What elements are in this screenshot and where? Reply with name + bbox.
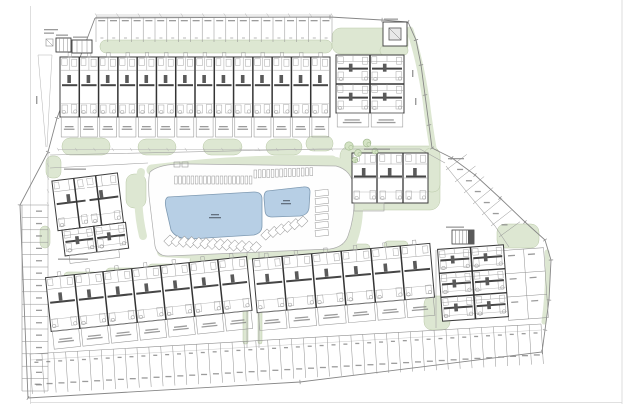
architectural-site-plan	[0, 0, 631, 404]
apartment-block-southeast	[438, 245, 509, 321]
tree-icon	[355, 150, 362, 157]
tree-icon	[352, 157, 358, 163]
tree-icon	[363, 139, 371, 147]
clubhouse-building	[352, 153, 428, 211]
site-plan-canvas	[0, 0, 631, 404]
top-parking-row	[96, 17, 332, 42]
transformer-hut	[383, 22, 407, 46]
stair-structure	[452, 230, 474, 244]
pool-small	[264, 187, 310, 217]
pool-large	[165, 192, 262, 239]
tree-icon	[345, 142, 353, 150]
site-plan-svg	[0, 0, 631, 404]
